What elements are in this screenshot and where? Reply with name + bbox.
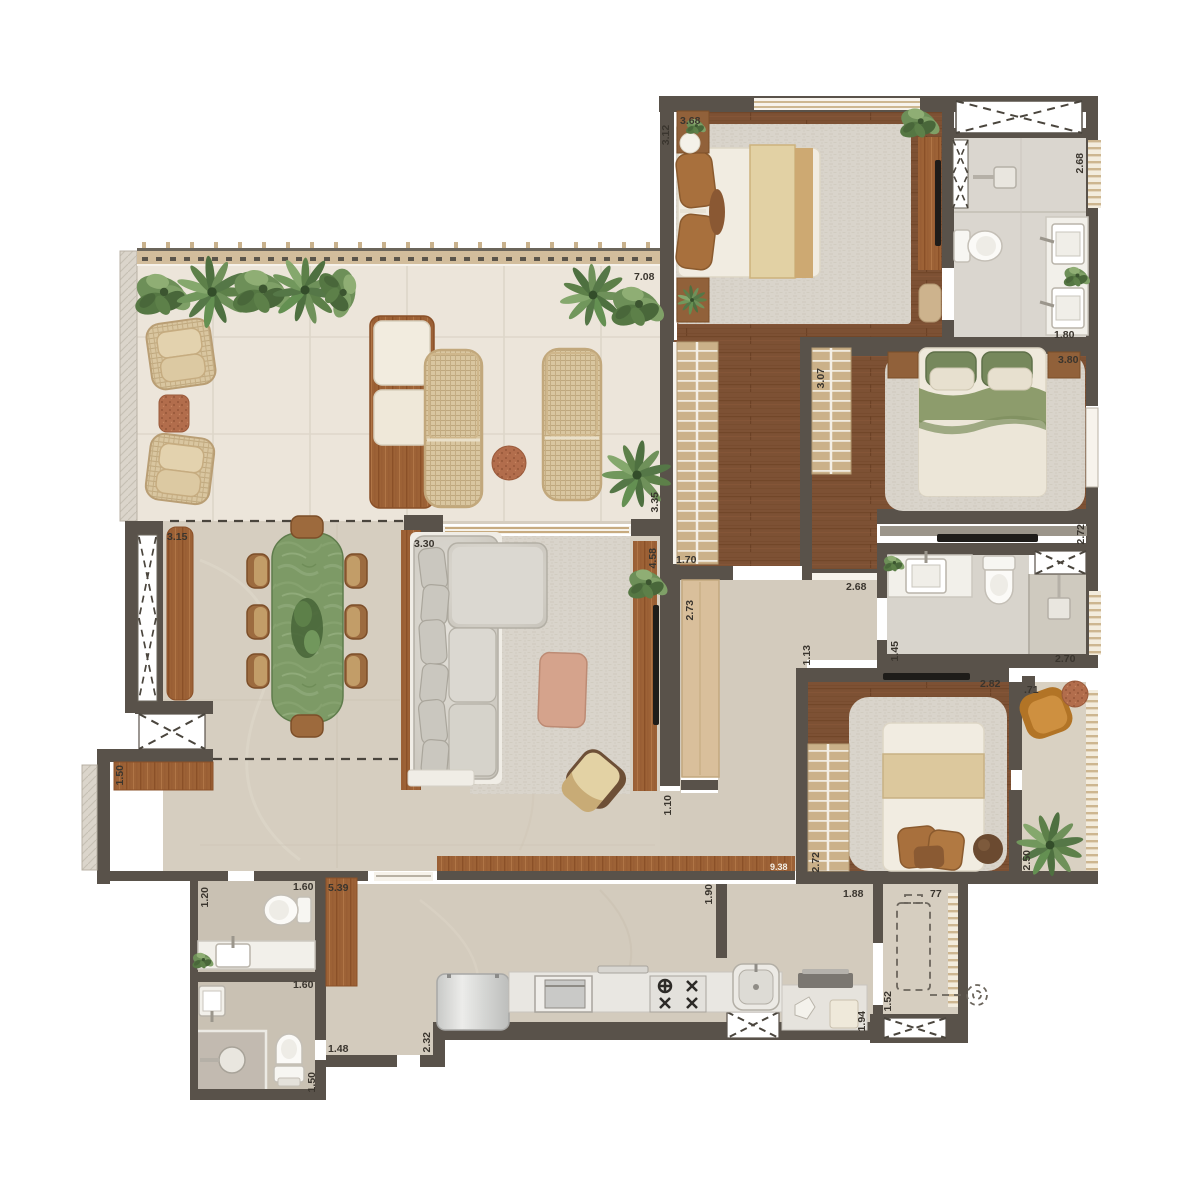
svg-text:.71: .71 <box>1024 684 1039 696</box>
svg-text:3.68: 3.68 <box>680 115 701 127</box>
svg-text:2.72: 2.72 <box>1075 524 1087 545</box>
svg-text:1.88: 1.88 <box>843 888 864 900</box>
svg-text:2.32: 2.32 <box>421 1032 433 1053</box>
svg-text:2.70: 2.70 <box>1055 653 1076 665</box>
svg-text:2.68: 2.68 <box>1074 153 1086 174</box>
svg-text:3.12: 3.12 <box>660 125 672 146</box>
svg-text:4.58: 4.58 <box>647 548 659 569</box>
svg-text:1.94: 1.94 <box>856 1011 868 1032</box>
svg-text:9.38: 9.38 <box>770 862 788 872</box>
svg-text:1.20: 1.20 <box>199 887 211 908</box>
svg-text:1.90: 1.90 <box>703 884 715 905</box>
svg-text:3.35: 3.35 <box>649 492 661 513</box>
svg-text:1.50: 1.50 <box>114 765 126 786</box>
svg-text:1.50: 1.50 <box>306 1072 318 1093</box>
svg-text:1.45: 1.45 <box>889 641 901 662</box>
svg-text:1.48: 1.48 <box>328 1043 349 1055</box>
svg-text:1.13: 1.13 <box>801 645 813 666</box>
svg-text:1.70: 1.70 <box>676 554 697 566</box>
svg-text:3.30: 3.30 <box>414 538 435 550</box>
svg-text:3.80: 3.80 <box>1058 354 1079 366</box>
svg-text:1.80: 1.80 <box>1054 329 1075 341</box>
svg-text:2.72: 2.72 <box>810 852 822 873</box>
svg-text:7.08: 7.08 <box>634 271 655 283</box>
svg-text:1.52: 1.52 <box>882 991 894 1012</box>
svg-text:1.60: 1.60 <box>293 979 314 991</box>
svg-text:2.73: 2.73 <box>684 600 696 621</box>
svg-text:2.50: 2.50 <box>1021 850 1033 871</box>
svg-text:1.10: 1.10 <box>662 795 674 816</box>
svg-text:2.82: 2.82 <box>980 678 1001 690</box>
svg-text:2.68: 2.68 <box>846 581 867 593</box>
svg-text:77: 77 <box>930 888 942 900</box>
svg-text:5.39: 5.39 <box>328 882 349 894</box>
svg-text:3.15: 3.15 <box>167 531 188 543</box>
svg-text:1.60: 1.60 <box>293 881 314 893</box>
svg-text:3.07: 3.07 <box>815 368 827 389</box>
